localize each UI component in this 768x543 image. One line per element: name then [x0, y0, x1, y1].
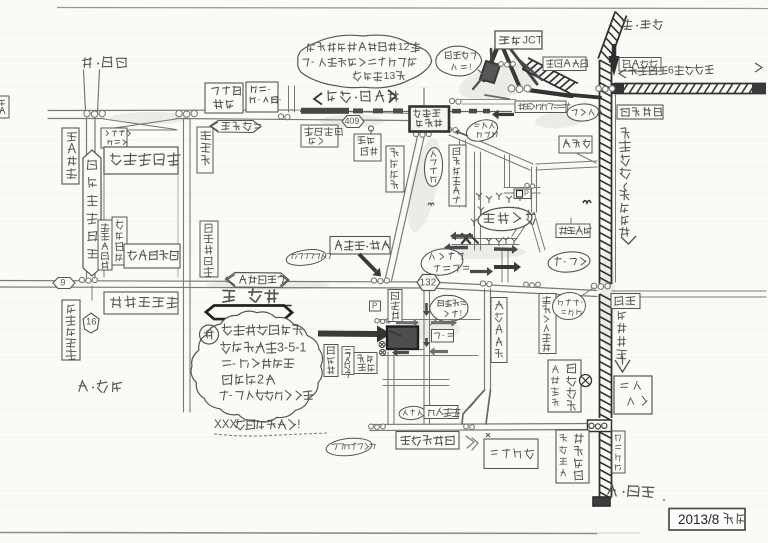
svg-text:P: P	[372, 302, 377, 311]
svg-text:!: !	[469, 62, 471, 72]
svg-text:!: !	[460, 309, 462, 318]
svg-text:!: !	[297, 418, 300, 431]
svg-text:-: -	[563, 256, 566, 267]
svg-text:XXX: XXX	[214, 418, 237, 431]
svg-text:-: -	[279, 95, 282, 104]
svg-text:-: -	[268, 84, 271, 94]
svg-text:16: 16	[86, 316, 97, 327]
svg-text:6: 6	[668, 64, 674, 76]
svg-text:13: 13	[384, 70, 396, 82]
svg-text:-: -	[229, 390, 233, 402]
svg-text:-: -	[232, 356, 236, 370]
svg-text:12: 12	[398, 41, 410, 53]
svg-text:2: 2	[257, 372, 264, 386]
svg-text:-: -	[311, 56, 315, 68]
svg-text:-: -	[442, 331, 445, 340]
svg-text:2013/8: 2013/8	[678, 512, 719, 527]
svg-text:132: 132	[420, 277, 437, 288]
svg-text:JCT: JCT	[523, 35, 543, 47]
svg-text:409: 409	[345, 116, 360, 126]
svg-text:3-5-1: 3-5-1	[277, 340, 306, 354]
svg-text:9: 9	[61, 278, 66, 288]
svg-text:-: -	[257, 95, 260, 104]
svg-text:P: P	[524, 189, 529, 198]
